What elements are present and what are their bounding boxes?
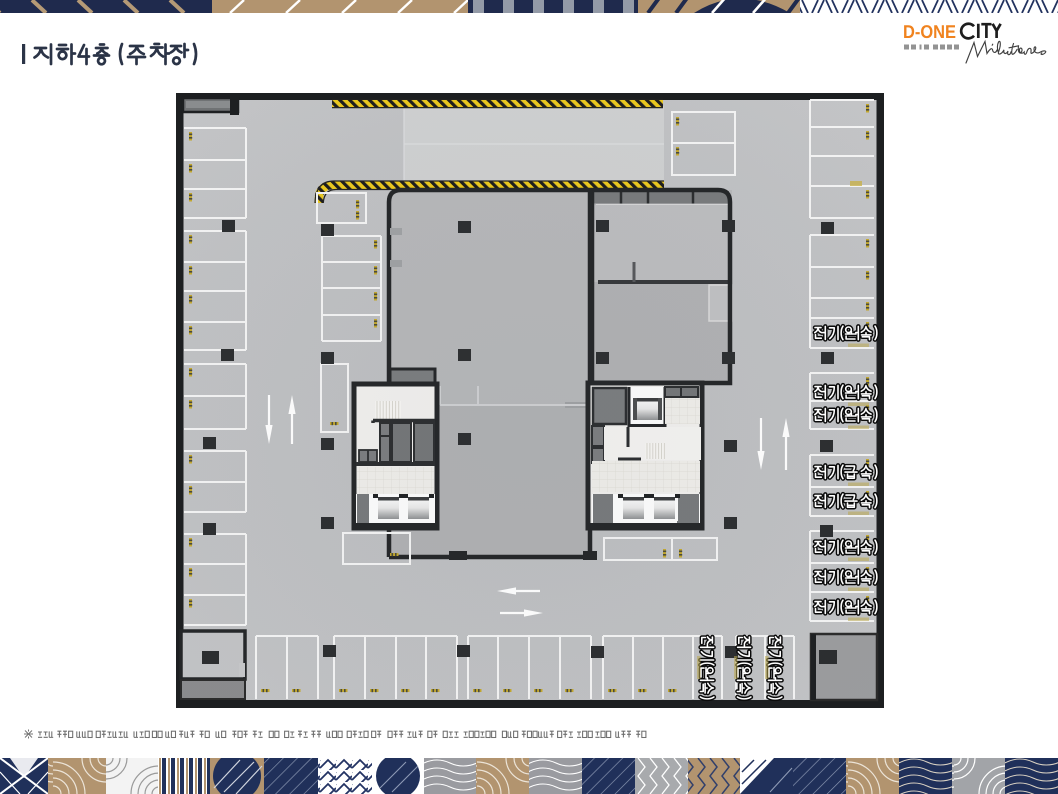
svg-text:D-ONE: D-ONE xyxy=(903,21,956,42)
